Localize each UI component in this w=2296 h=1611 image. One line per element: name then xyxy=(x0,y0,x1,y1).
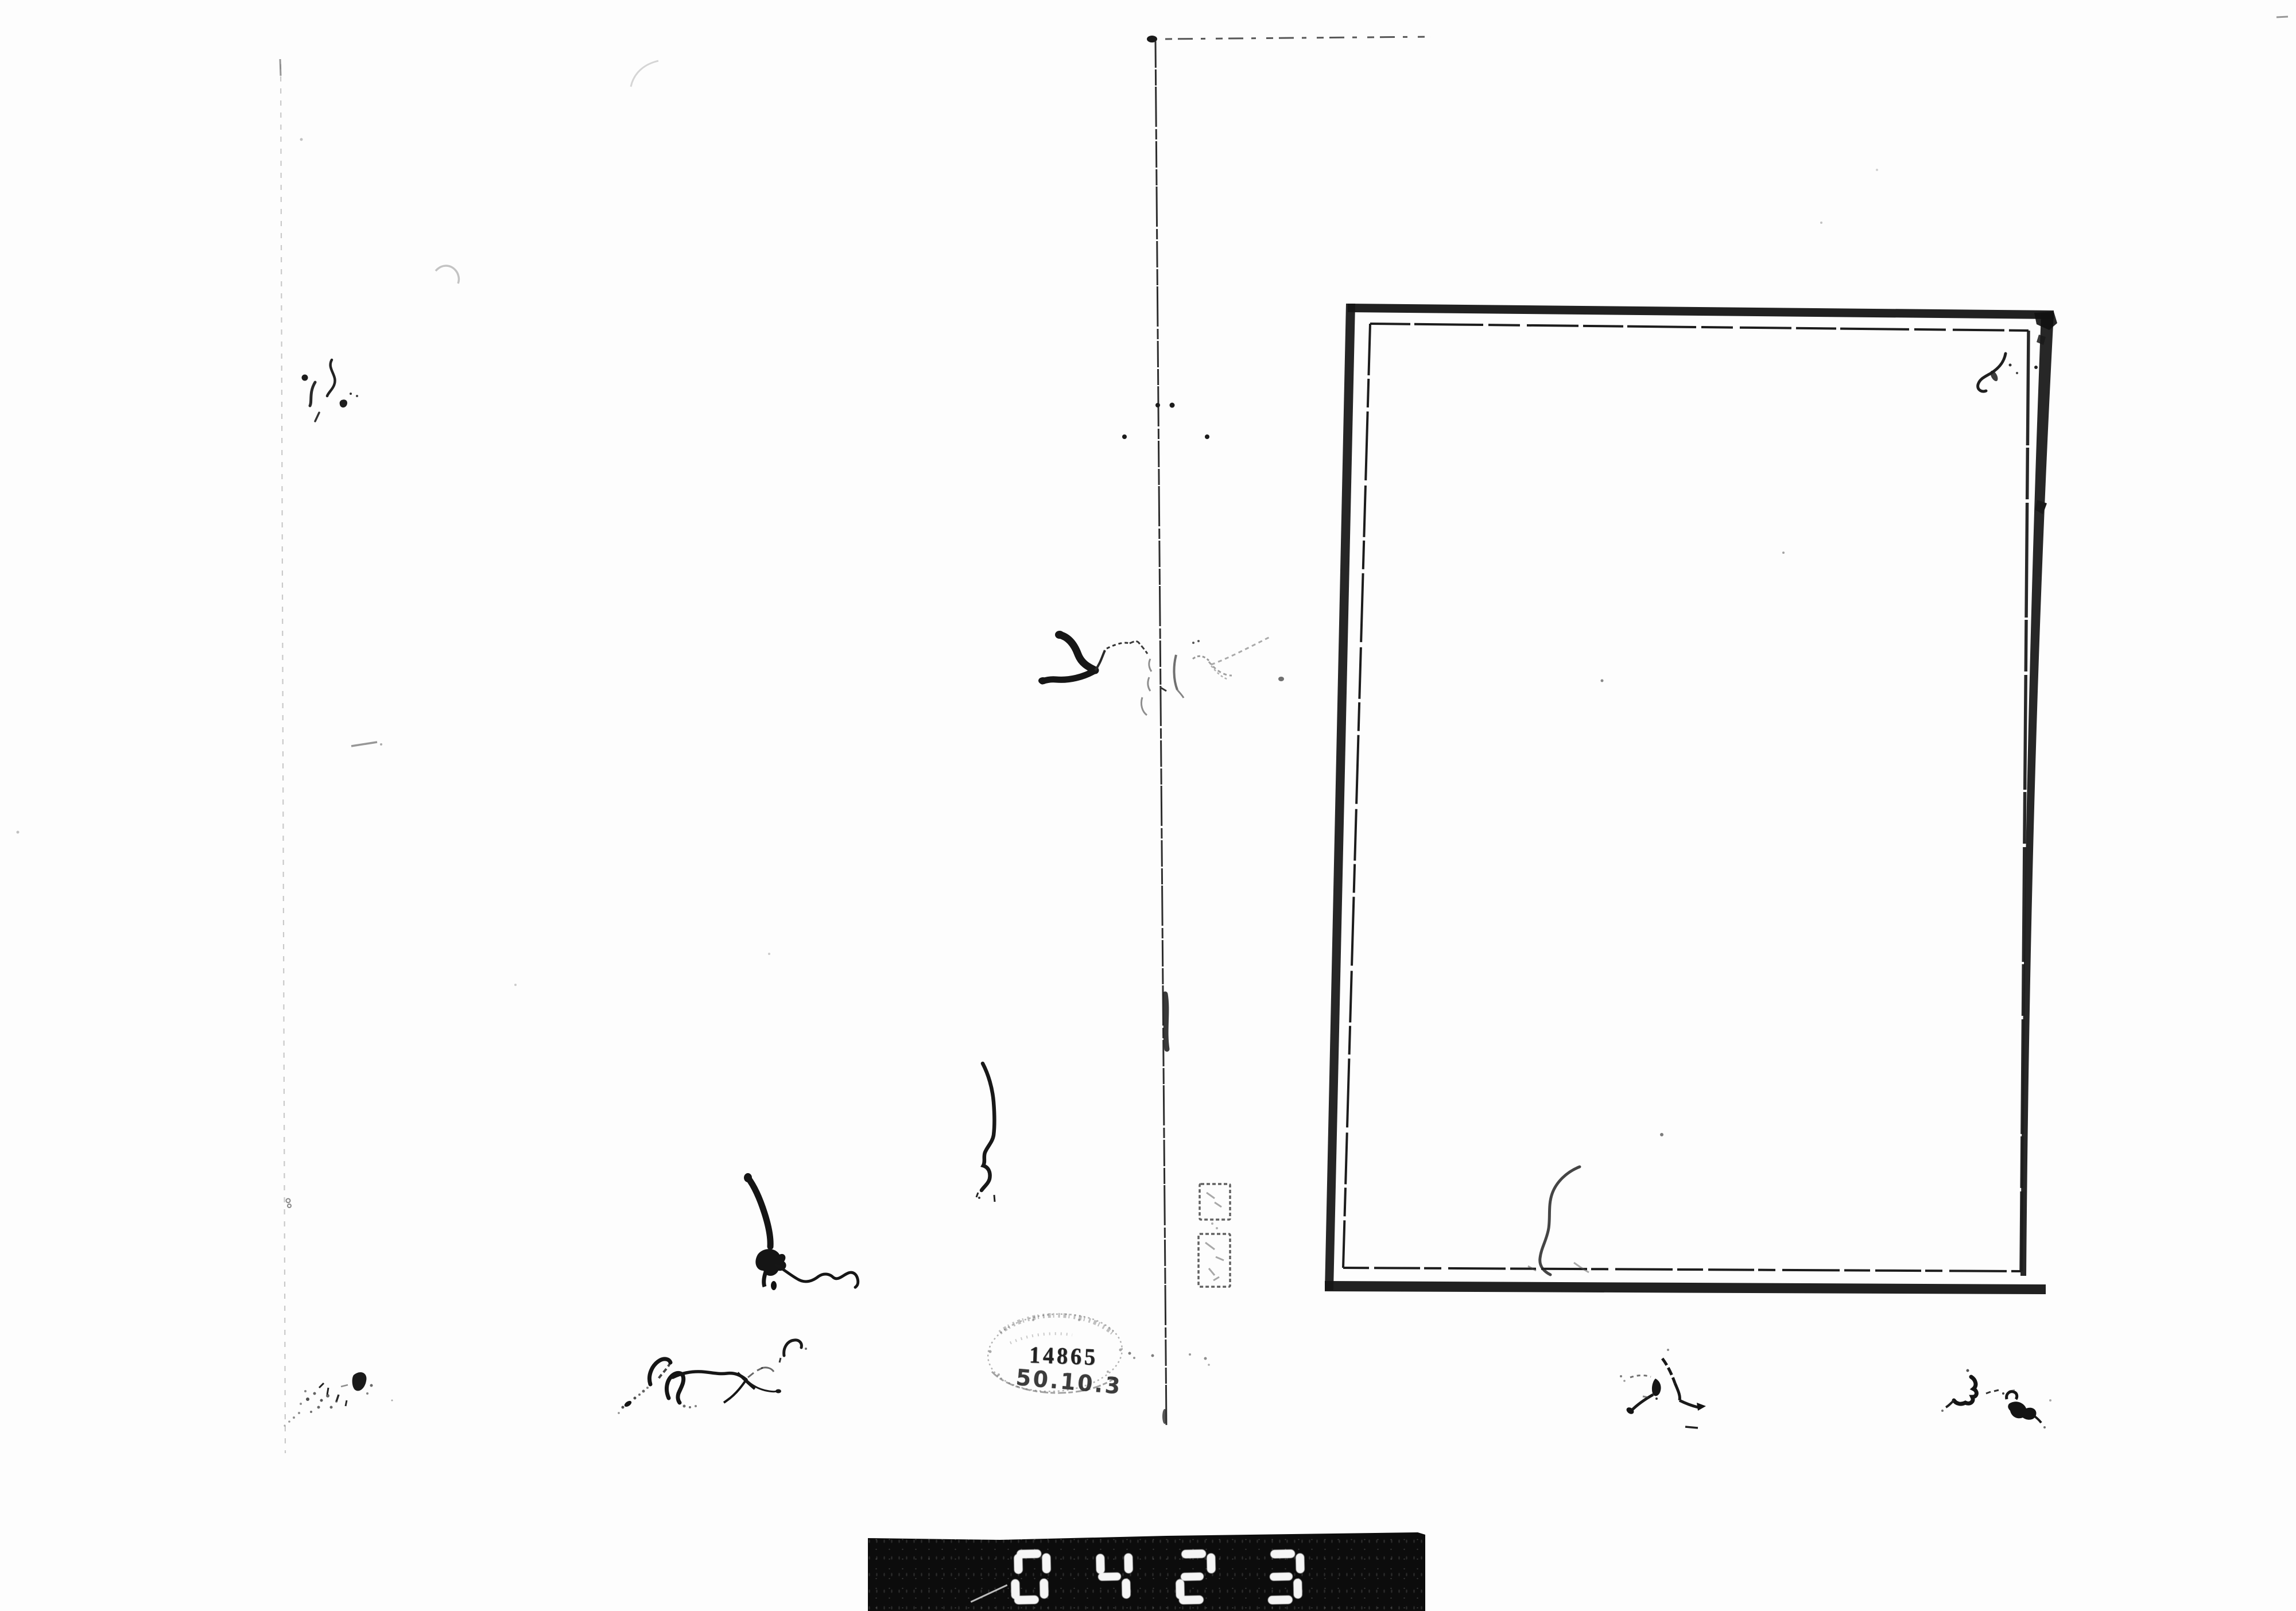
segment-b xyxy=(1296,1553,1305,1573)
scan-artwork xyxy=(0,0,2296,1611)
segment-g xyxy=(1270,1573,1293,1581)
stamp-accession-number: 14865 xyxy=(1029,1341,1098,1371)
counter-digit-4 xyxy=(1090,1548,1136,1605)
segment-f xyxy=(1096,1554,1105,1574)
segment-b xyxy=(1124,1553,1133,1573)
ink-hair-marks xyxy=(284,61,2051,1428)
counter-digits xyxy=(0,1548,2296,1611)
left-page-edge-line xyxy=(280,59,285,1453)
segment-g xyxy=(1181,1573,1204,1581)
page-fold-line xyxy=(1122,36,1209,1427)
frame-interior-marks xyxy=(1528,354,2018,1275)
counter-digit-3 xyxy=(1262,1548,1308,1605)
segment-c xyxy=(1040,1578,1049,1598)
book-frame-border xyxy=(1325,304,2057,1294)
segment-c xyxy=(1122,1578,1131,1598)
segment-c xyxy=(1293,1578,1302,1598)
scanned-book-page: 14865 50.10.3 xyxy=(0,0,2296,1611)
segment-g xyxy=(1098,1573,1121,1581)
collection-seal xyxy=(1199,1184,1230,1287)
foxing-specks xyxy=(17,138,1879,1208)
segment-e xyxy=(1176,1579,1185,1599)
segment-b xyxy=(1042,1553,1051,1573)
segment-f xyxy=(1014,1554,1023,1574)
segment-b xyxy=(1207,1553,1216,1573)
counter-digit-2 xyxy=(1173,1548,1219,1605)
page-top-edge-dashes xyxy=(1165,17,2288,39)
segment-e xyxy=(1011,1579,1020,1599)
counter-digit-0 xyxy=(1008,1548,1054,1605)
